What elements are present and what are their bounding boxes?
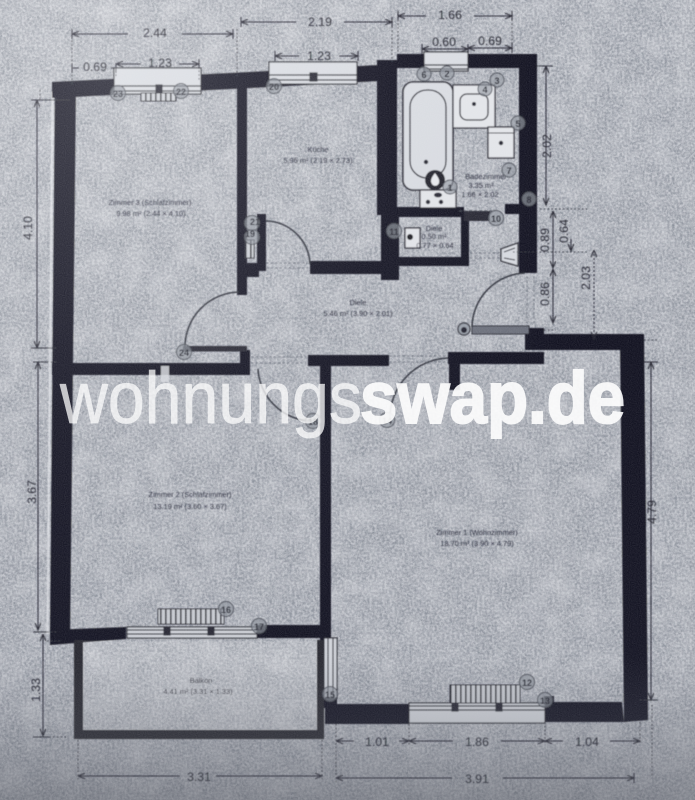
svg-text:swap.de: swap.de xyxy=(360,358,625,439)
svg-text:wohnungs: wohnungs xyxy=(59,358,362,439)
